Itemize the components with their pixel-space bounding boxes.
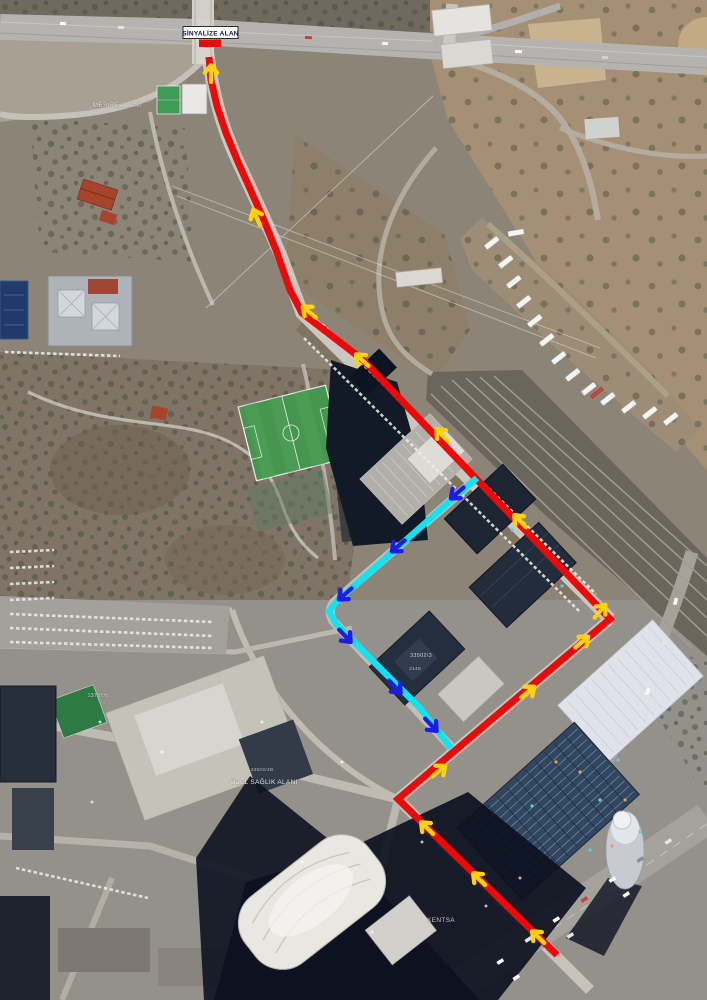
- signalized-area-label: SİNYALİZE ALAN: [182, 29, 239, 37]
- map-watermark-label: 2148: [409, 666, 421, 672]
- map-watermark-label: 33502/3: [410, 653, 432, 659]
- map-viewport[interactable]: MESİRE ALANIÖZEL SAĞLIK ALANI33502/2B335…: [0, 0, 707, 1000]
- map-watermark-label: ÖZEL SAĞLIK ALANI: [230, 777, 297, 786]
- map-watermark-label: KENTSA: [427, 917, 455, 924]
- map-watermark-label: 33502/2B: [251, 767, 274, 773]
- map-watermark-label: MESİRE ALANI: [93, 100, 142, 109]
- map-watermark-label: 13787/5: [88, 693, 109, 699]
- satellite-map: MESİRE ALANIÖZEL SAĞLIK ALANI33502/2B335…: [0, 0, 707, 1000]
- signalized-area-bar: [199, 40, 221, 48]
